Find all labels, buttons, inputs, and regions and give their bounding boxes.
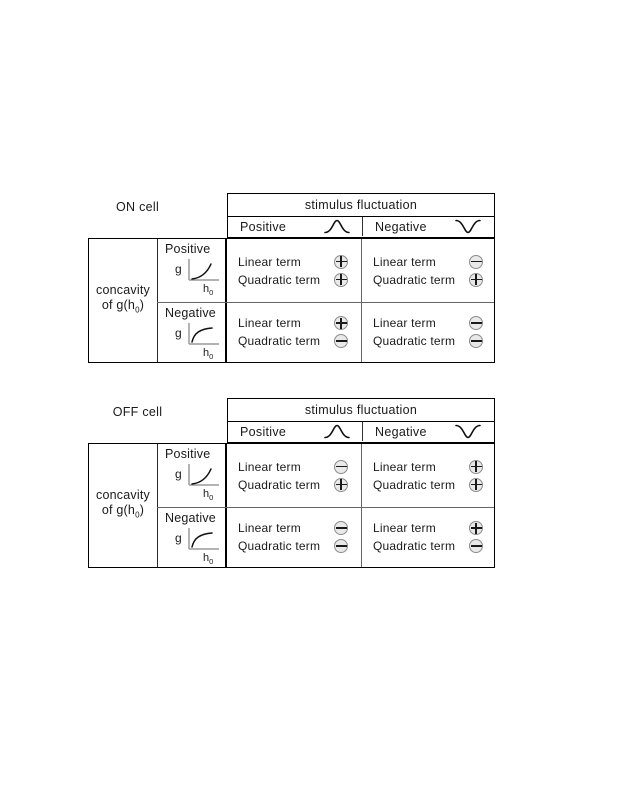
stimulus-fluctuation-header: stimulus fluctuation Positive Negative (227, 398, 495, 443)
g-axis-label: g (175, 262, 182, 276)
linear-term-row: Linear term (238, 254, 348, 270)
linear-term-label: Linear term (238, 316, 301, 330)
linear-term-label: Linear term (373, 460, 436, 474)
quadratic-term-label: Quadratic term (373, 334, 455, 348)
linear-sign-circle (334, 255, 348, 269)
concavity-positive-label: Positive (165, 242, 225, 256)
quadratic-term-label: Quadratic term (238, 539, 320, 553)
quadratic-term-label: Quadratic term (238, 273, 320, 287)
dip-curve-icon (455, 424, 481, 439)
off-cell-body: concavity of g(h0) Positive g h0 Negativ… (88, 443, 495, 568)
stimulus-negative-label: Negative (375, 220, 427, 234)
concave-increasing-curve-icon: g h0 (175, 526, 227, 566)
quadratic-sign-circle (469, 334, 483, 348)
linear-term-row: Linear term (373, 254, 483, 270)
h0-axis-label: h0 (203, 283, 213, 297)
concavity-label-line1: concavity (96, 283, 150, 298)
linear-term-row: Linear term (373, 459, 483, 475)
linear-sign-circle (334, 460, 348, 474)
divider (157, 239, 158, 362)
stimulus-positive-label: Positive (240, 425, 286, 439)
linear-term-row: Linear term (373, 520, 483, 536)
stimulus-fluctuation-header: stimulus fluctuation Positive Negative (227, 193, 495, 238)
quadratic-term-row: Quadratic term (238, 538, 348, 554)
off-cell-title: OFF cell (88, 398, 227, 443)
stimulus-negative-label: Negative (375, 425, 427, 439)
quadratic-sign-circle (334, 273, 348, 287)
quadratic-sign-circle (334, 539, 348, 553)
divider (361, 444, 362, 567)
linear-term-row: Linear term (238, 459, 348, 475)
stimulus-positive-label: Positive (240, 220, 286, 234)
quadratic-term-row: Quadratic term (373, 272, 483, 288)
stimulus-negative-header: Negative (363, 217, 493, 236)
h0-axis-label: h0 (203, 347, 213, 361)
divider (157, 444, 158, 567)
linear-sign-circle (334, 521, 348, 535)
linear-sign-circle (469, 316, 483, 330)
bump-curve-icon (324, 424, 350, 439)
convex-increasing-curve-icon: g h0 (175, 462, 227, 502)
quadratic-sign-circle (469, 539, 483, 553)
concavity-negative-label: Negative (165, 511, 225, 525)
linear-term-row: Linear term (238, 315, 348, 331)
linear-sign-circle (469, 460, 483, 474)
linear-term-label: Linear term (238, 521, 301, 535)
dip-curve-icon (455, 219, 481, 234)
concavity-negative-label: Negative (165, 306, 225, 320)
concavity-row-header: concavity of g(h0) (89, 444, 157, 566)
quadratic-sign-circle (334, 334, 348, 348)
quadratic-term-label: Quadratic term (238, 478, 320, 492)
on-pos-concavity-pos-stimulus-cell: Linear term Quadratic term (228, 239, 360, 302)
off-cell-table: OFF cell stimulus fluctuation Positive N… (88, 398, 495, 568)
quadratic-term-label: Quadratic term (373, 539, 455, 553)
quadratic-term-row: Quadratic term (373, 477, 483, 493)
quadratic-term-row: Quadratic term (238, 272, 348, 288)
linear-term-row: Linear term (238, 520, 348, 536)
off-pos-concavity-pos-stimulus-cell: Linear term Quadratic term (228, 444, 360, 507)
concavity-label-line2: of g(h0) (102, 503, 144, 523)
linear-sign-circle (469, 255, 483, 269)
linear-term-row: Linear term (373, 315, 483, 331)
quadratic-term-label: Quadratic term (373, 478, 455, 492)
off-neg-concavity-pos-stimulus-cell: Linear term Quadratic term (228, 508, 360, 566)
concave-increasing-curve-icon: g h0 (175, 321, 227, 361)
stimulus-fluctuation-title: stimulus fluctuation (228, 399, 494, 422)
concavity-negative-cell: Negative g h0 (159, 508, 225, 566)
concavity-label-line1: concavity (96, 488, 150, 503)
on-cell-title: ON cell (88, 193, 227, 238)
quadratic-term-row: Quadratic term (373, 538, 483, 554)
concavity-positive-cell: Positive g h0 (159, 239, 225, 302)
linear-term-label: Linear term (373, 521, 436, 535)
quadratic-term-row: Quadratic term (373, 333, 483, 349)
stimulus-positive-header: Positive (228, 422, 363, 441)
h0-axis-label: h0 (203, 552, 213, 566)
g-axis-label: g (175, 467, 182, 481)
linear-term-label: Linear term (238, 460, 301, 474)
concavity-row-header: concavity of g(h0) (89, 239, 157, 361)
stimulus-fluctuation-title: stimulus fluctuation (228, 194, 494, 217)
convex-increasing-curve-icon: g h0 (175, 257, 227, 297)
linear-term-label: Linear term (238, 255, 301, 269)
quadratic-sign-circle (469, 273, 483, 287)
off-pos-concavity-neg-stimulus-cell: Linear term Quadratic term (363, 444, 493, 507)
g-axis-label: g (175, 531, 182, 545)
stimulus-negative-header: Negative (363, 422, 493, 441)
concavity-label-line2: of g(h0) (102, 298, 144, 318)
linear-sign-circle (334, 316, 348, 330)
on-cell-body: concavity of g(h0) Positive g h0 Negativ… (88, 238, 495, 363)
concavity-negative-cell: Negative g h0 (159, 303, 225, 361)
stimulus-positive-header: Positive (228, 217, 363, 236)
quadratic-sign-circle (469, 478, 483, 492)
quadratic-term-label: Quadratic term (373, 273, 455, 287)
h0-axis-label: h0 (203, 488, 213, 502)
on-pos-concavity-neg-stimulus-cell: Linear term Quadratic term (363, 239, 493, 302)
linear-term-label: Linear term (373, 255, 436, 269)
quadratic-sign-circle (334, 478, 348, 492)
quadratic-term-row: Quadratic term (238, 477, 348, 493)
off-neg-concavity-neg-stimulus-cell: Linear term Quadratic term (363, 508, 493, 566)
concavity-positive-label: Positive (165, 447, 225, 461)
linear-term-label: Linear term (373, 316, 436, 330)
on-neg-concavity-pos-stimulus-cell: Linear term Quadratic term (228, 303, 360, 361)
concavity-positive-cell: Positive g h0 (159, 444, 225, 507)
on-neg-concavity-neg-stimulus-cell: Linear term Quadratic term (363, 303, 493, 361)
quadratic-term-label: Quadratic term (238, 334, 320, 348)
linear-sign-circle (469, 521, 483, 535)
bump-curve-icon (324, 219, 350, 234)
divider (361, 239, 362, 362)
quadratic-term-row: Quadratic term (238, 333, 348, 349)
on-cell-table: ON cell stimulus fluctuation Positive Ne… (88, 193, 495, 363)
g-axis-label: g (175, 326, 182, 340)
